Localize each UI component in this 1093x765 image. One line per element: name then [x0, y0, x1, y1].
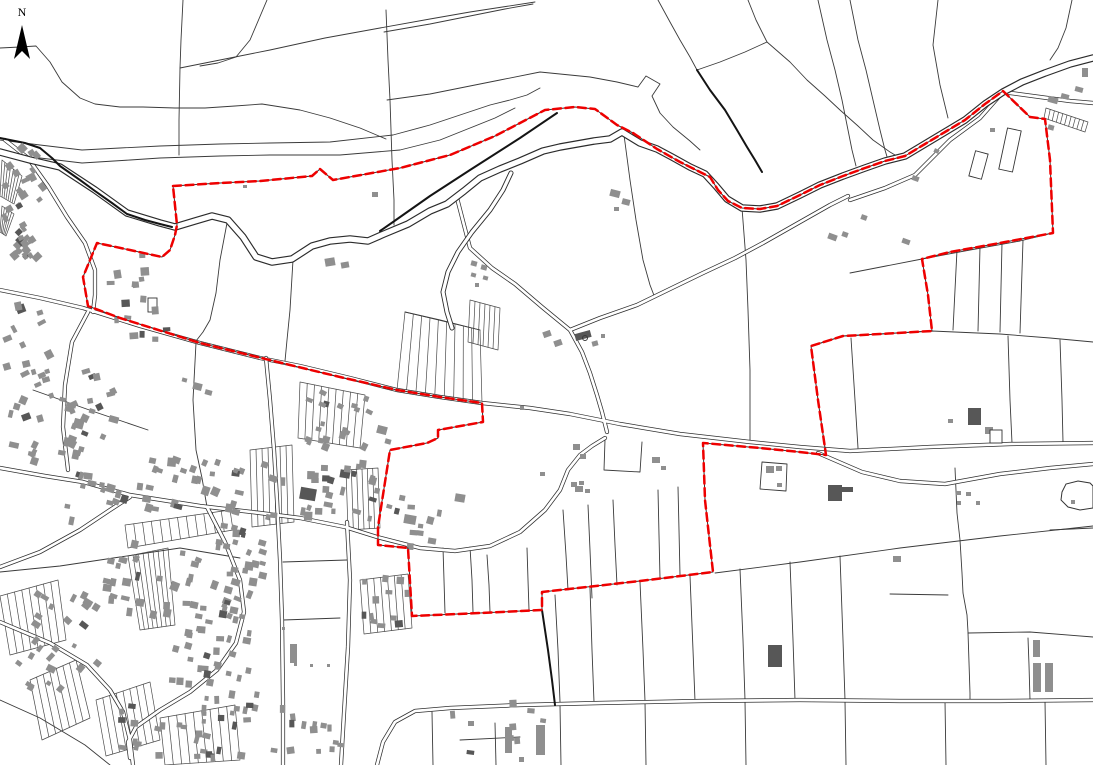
- river-layer: [0, 58, 1093, 328]
- north-label: N: [18, 5, 27, 19]
- site-boundary: [83, 91, 1053, 616]
- north-arrow: N: [14, 5, 30, 59]
- building-layer: [1, 68, 1088, 762]
- hatch-layer: [0, 108, 1088, 765]
- map-canvas: N: [0, 0, 1093, 765]
- blob-layer: [1061, 481, 1093, 510]
- map-viewport: N: [0, 0, 1093, 765]
- road-casing-layer: [0, 92, 1093, 765]
- road-fill-layer: [0, 92, 1093, 765]
- parcel-lines-layer: [0, 0, 1093, 765]
- north-arrow-icon: [14, 25, 30, 59]
- site-boundary-dashed: [83, 91, 1053, 616]
